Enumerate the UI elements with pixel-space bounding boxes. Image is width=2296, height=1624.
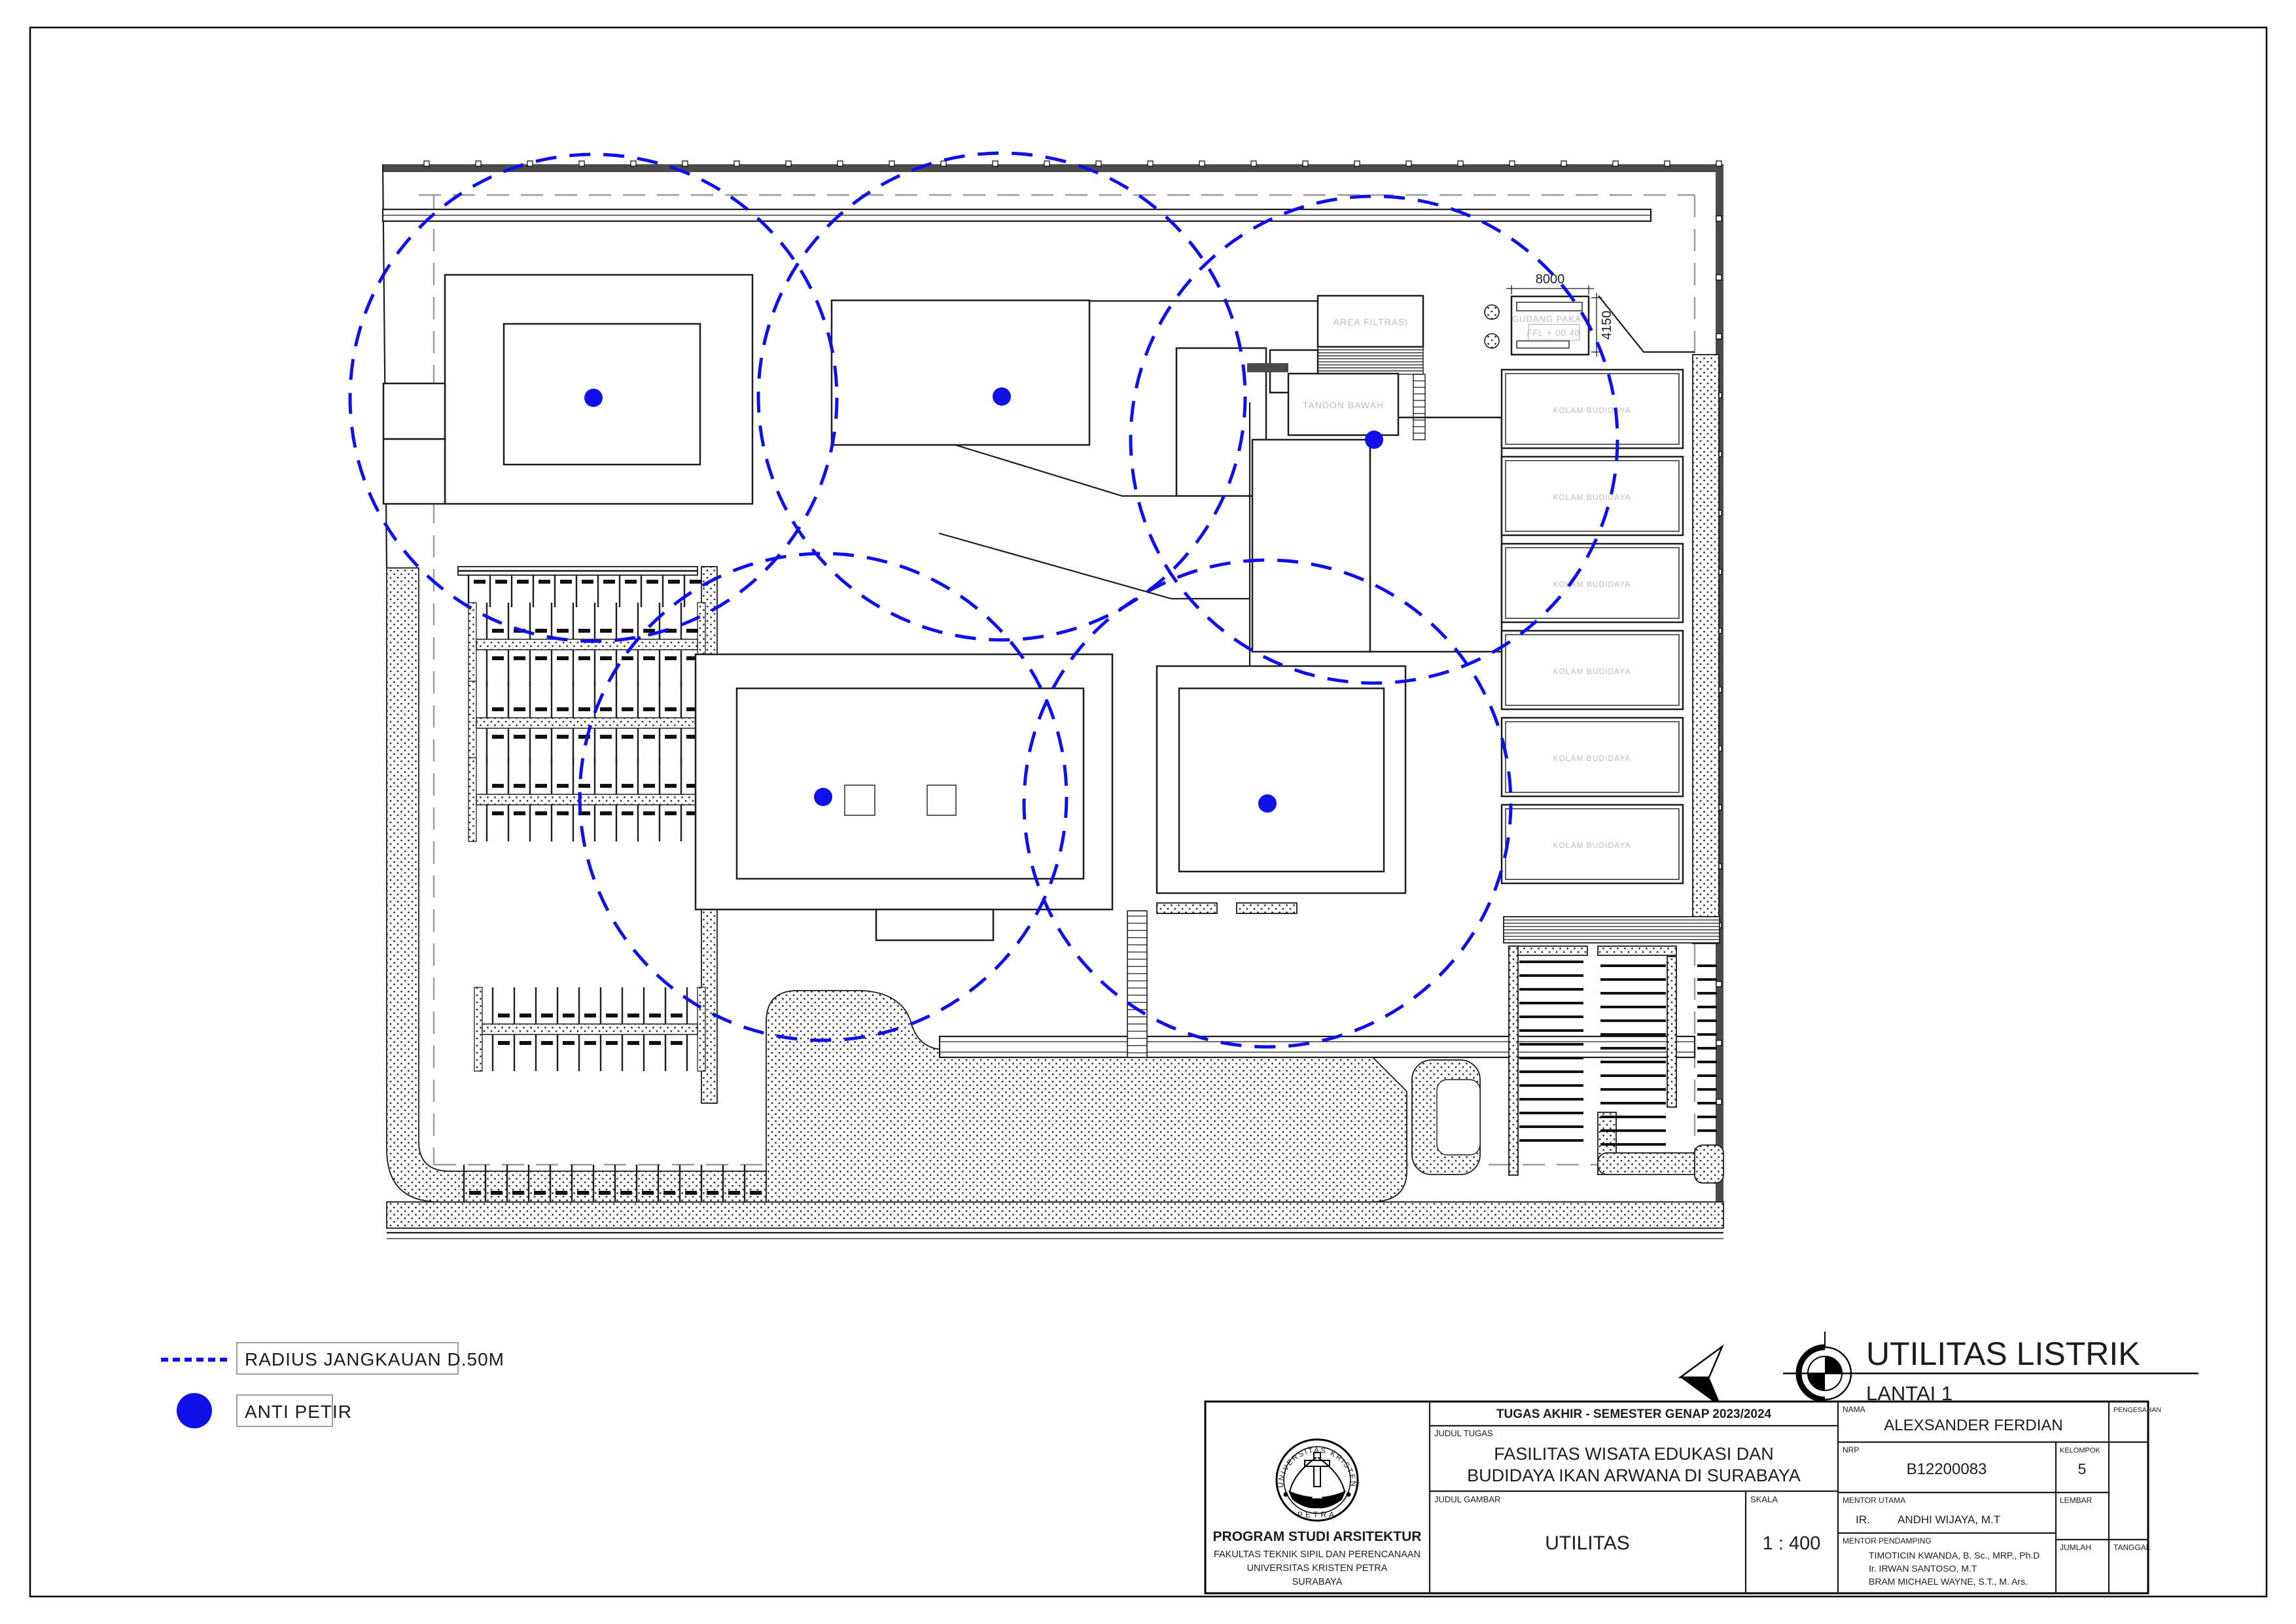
building-4 (696, 654, 1112, 940)
project-title-line2: BUDIDAYA IKAN ARWANA DI SURABAYA (1467, 1466, 1801, 1485)
institution-line4: SURABAYA (1292, 1577, 1343, 1587)
room-label: KOLAM BUDIDAYA (1553, 580, 1631, 589)
east-planting-strip (1693, 355, 1719, 944)
label-jumlah: JUMLAH (2060, 1543, 2091, 1552)
sheet-name: UTILITAS (1545, 1532, 1629, 1554)
south-planting-strip (387, 1202, 1723, 1228)
louver-canopy (1504, 917, 1720, 943)
drawing-sheet: AREA FILTRASI TANDON BAWAH GUDANG PAKAN … (0, 0, 2296, 1624)
title-block: UNIVERSITAS KRISTEN PETRA PROGRAM STUDI … (1205, 1402, 2161, 1593)
anti-petir-dot (993, 387, 1011, 406)
room-label: KOLAM BUDIDAYA (1553, 667, 1631, 676)
mentor-utama-name: ANDHI WIJAYA, M.T (1898, 1513, 2000, 1526)
label-pengesahan: PENGESAHAN (2113, 1406, 2161, 1414)
mentor-pendamping-1: TIMOTICIN KWANDA, B. Sc., MRP., Ph.D (1869, 1550, 2040, 1561)
turnaround (1412, 1060, 1480, 1174)
label-mentor-utama: MENTOR UTAMA (1843, 1496, 1905, 1505)
dimension-4150: 4150 (1600, 311, 1614, 340)
room-label: KOLAM BUDIDAYA (1553, 841, 1631, 850)
ffl-label: FFL + 00.40 (1527, 328, 1580, 338)
project-title-line1: FASILITAS WISATA EDUKASI DAN (1494, 1444, 1774, 1464)
drawing-title: UTILITAS LISTRIK (1866, 1335, 2140, 1372)
mentor-pendamping-3: BRAM MICHAEL WAYNE, S.T., M. Ars. (1869, 1576, 2028, 1587)
room-label: KOLAM BUDIDAYA (1553, 754, 1631, 763)
group-number: 5 (2078, 1460, 2087, 1477)
legend-dot-sample (177, 1393, 212, 1428)
room-label: GUDANG PAKAN (1512, 314, 1588, 324)
label-nama: NAMA (1843, 1405, 1865, 1414)
legend-item-label: ANTI PETIR (245, 1402, 352, 1422)
label-lembar: LEMBAR (2060, 1496, 2093, 1505)
university-logo: UNIVERSITAS KRISTEN PETRA (1277, 1439, 1358, 1521)
institution-line2: FAKULTAS TEKNIK SIPIL DAN PERENCANAAN (1214, 1549, 1421, 1560)
anti-petir-dot (584, 389, 603, 407)
student-nrp: B12200083 (1907, 1460, 1987, 1478)
label-tanggal: TANGGAL (2113, 1543, 2151, 1552)
mentor-utama-prefix: IR. (1856, 1513, 1870, 1526)
mentor-pendamping-2: Ir. IRWAN SANTOSO, M.T (1869, 1563, 1977, 1574)
anti-petir-dot (1365, 431, 1383, 449)
institution-line3: UNIVERSITAS KRISTEN PETRA (1247, 1563, 1388, 1574)
institution-line1: PROGRAM STUDI ARSITEKTUR (1213, 1529, 1422, 1544)
planter (1237, 903, 1297, 913)
building-5 (1157, 666, 1405, 893)
label-judul-tugas: JUDUL TUGAS (1434, 1428, 1493, 1438)
pedestrian-crossing (1127, 911, 1147, 1057)
anti-petir-dot (1258, 794, 1277, 813)
project-header: TUGAS AKHIR - SEMESTER GENAP 2023/2024 (1496, 1407, 1772, 1421)
dimension-8000: 8000 (1536, 272, 1565, 287)
room-label: TANDON BAWAH (1303, 400, 1384, 410)
planter (1157, 903, 1217, 913)
service-road (940, 1036, 1695, 1057)
scale-value: 1 : 400 (1763, 1533, 1821, 1554)
label-mentor-pendamping: MENTOR PENDAMPING (1843, 1536, 1932, 1545)
label-kelompok: KELOMPOK (2060, 1447, 2100, 1455)
legend-item-label: RADIUS JANGKAUAN D.50M (245, 1349, 504, 1369)
anti-petir-dot (814, 788, 832, 806)
student-name: ALEXSANDER FERDIAN (1884, 1417, 2062, 1434)
room-label: KOLAM BUDIDAYA (1553, 406, 1631, 415)
room-label: KOLAM BUDIDAYA (1553, 493, 1631, 502)
logo-bottom-text: PETRA (1298, 1510, 1337, 1519)
label-judul-gambar: JUDUL GAMBAR (1434, 1494, 1500, 1504)
label-nrp: NRP (1843, 1445, 1859, 1455)
label-skala: SKALA (1750, 1494, 1778, 1504)
room-label: AREA FILTRASI (1333, 317, 1409, 327)
